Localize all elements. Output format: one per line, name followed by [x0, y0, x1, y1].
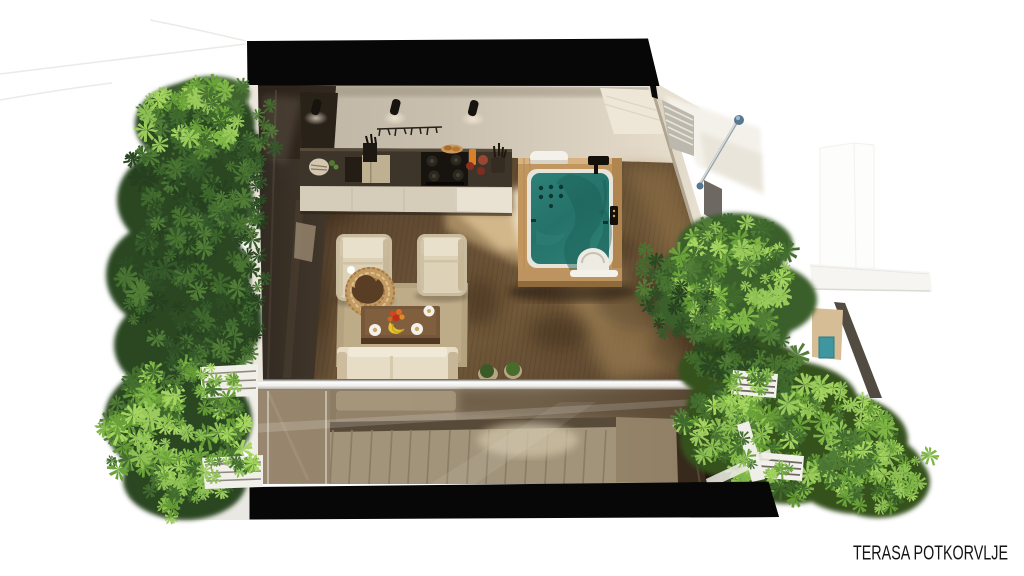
- svg-text:TERASA POTKORVLJE: TERASA POTKORVLJE: [853, 542, 1008, 565]
